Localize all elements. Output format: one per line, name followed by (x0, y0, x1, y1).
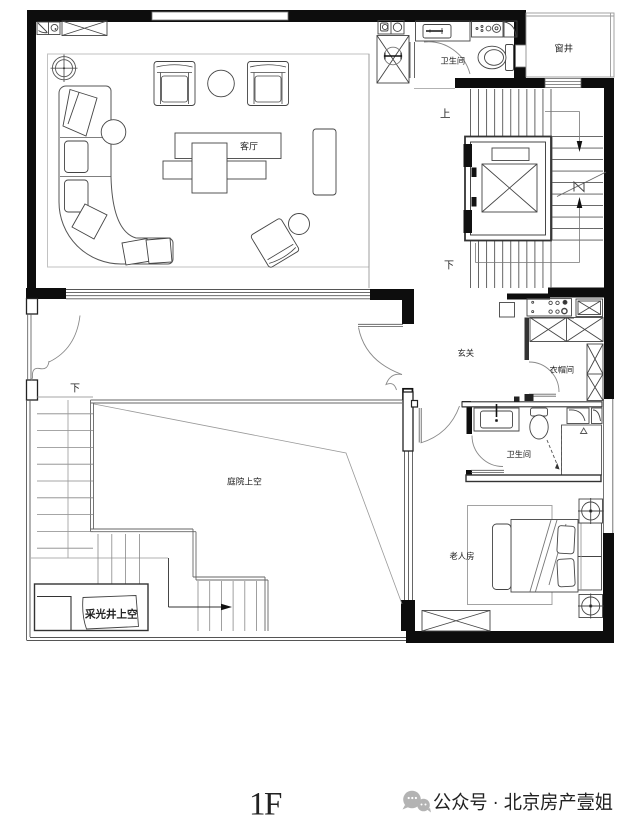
svg-text:老人房: 老人房 (450, 551, 475, 561)
svg-text:衣帽间: 衣帽间 (550, 365, 575, 375)
svg-text:玄关: 玄关 (458, 348, 475, 358)
svg-text:下: 下 (444, 261, 454, 272)
svg-text:公众号 · 北京房产壹姐: 公众号 · 北京房产壹姐 (433, 792, 613, 814)
svg-text:1F: 1F (249, 787, 282, 823)
svg-text:采光井上空: 采光井上空 (84, 608, 138, 621)
svg-text:庭院上空: 庭院上空 (227, 476, 262, 487)
svg-text:窗井: 窗井 (555, 43, 574, 54)
svg-text:卫生间: 卫生间 (507, 449, 532, 459)
svg-text:客厅: 客厅 (240, 141, 258, 152)
svg-text:卫生间: 卫生间 (441, 56, 466, 66)
svg-text:下: 下 (70, 384, 80, 395)
svg-text:上: 上 (440, 108, 451, 120)
